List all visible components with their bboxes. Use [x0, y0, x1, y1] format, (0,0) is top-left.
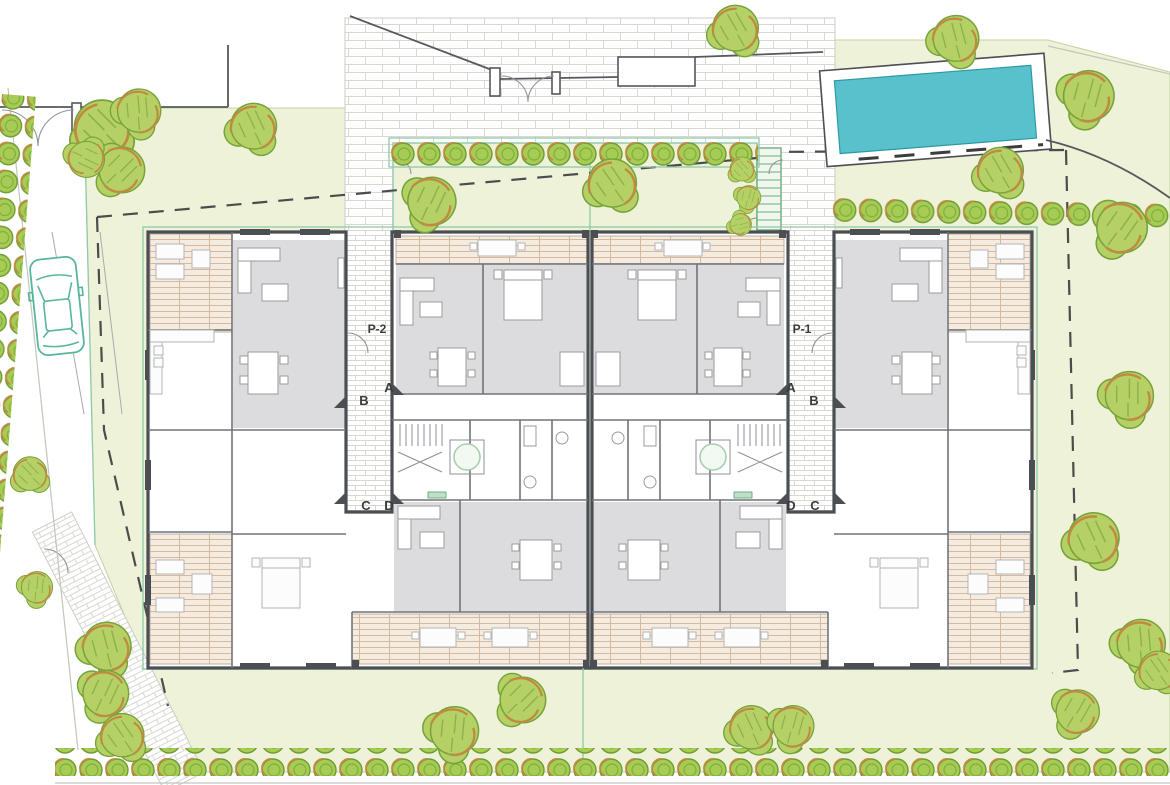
hedge-bottom [55, 748, 1170, 776]
entrance-label-p2: P-2 [368, 322, 387, 336]
building-right-wing [590, 160, 1035, 669]
tree [10, 457, 49, 493]
door-label-left-d: D [384, 498, 393, 513]
hedge-top [389, 138, 759, 167]
swimming-pool [820, 53, 1052, 166]
garden-stairs [757, 148, 781, 230]
hedge-left [0, 94, 36, 750]
door-label-right-b: B [809, 393, 818, 408]
site-plan-canvas: P-2 P-1 A B C D A B D C [0, 0, 1170, 785]
door-label-left-a: A [384, 380, 394, 395]
apartment-building [145, 160, 1035, 669]
door-label-left-b: B [359, 393, 368, 408]
door-label-left-c: C [361, 498, 371, 513]
gate-post [552, 72, 560, 94]
site-plan-drawing: P-2 P-1 A B C D A B D C [0, 0, 1170, 785]
building-left-wing [145, 160, 590, 669]
door-label-right-c: C [810, 498, 820, 513]
entry-kiosk [618, 57, 695, 86]
gate-post [490, 68, 500, 96]
door-label-right-a: A [786, 380, 796, 395]
entrance-label-p1: P-1 [793, 322, 812, 336]
door-label-right-d: D [786, 498, 795, 513]
